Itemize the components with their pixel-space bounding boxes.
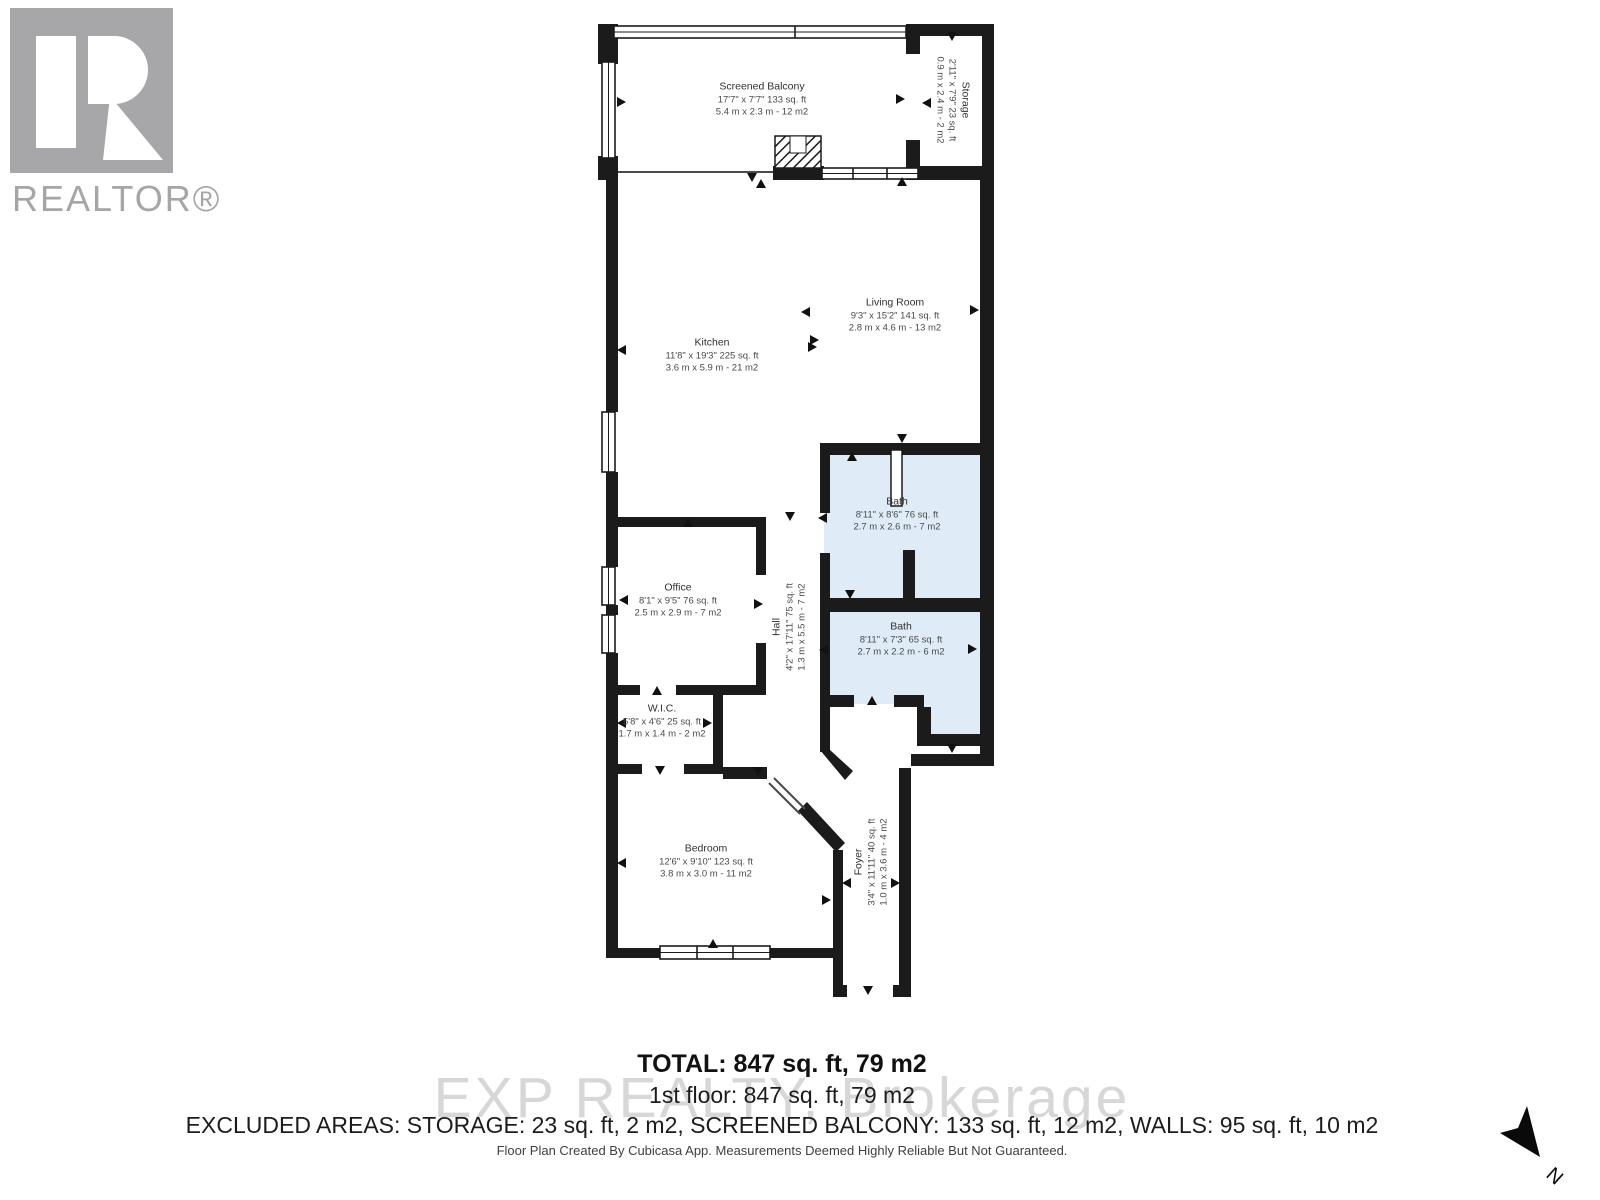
north-label: N [1542,1163,1567,1189]
disclaimer-text: Floor Plan Created By Cubicasa App. Meas… [0,1143,1564,1158]
shower-partition [891,450,902,506]
realtor-wordmark: REALTOR® [12,178,221,220]
first-floor-line: 1st floor: 847 sq. ft, 79 m2 [0,1082,1564,1109]
excluded-areas-line: EXCLUDED AREAS: STORAGE: 23 sq. ft, 2 m2… [0,1112,1564,1139]
floor-plan-drawing: N [0,0,1600,1200]
total-area-line: TOTAL: 847 sq. ft, 79 m2 [0,1050,1564,1079]
opening-lines [618,172,805,814]
realtor-logo [10,8,210,183]
floor-plan-page: REALTOR® EXP REALTY, Brokerage [0,0,1600,1200]
area-summary: TOTAL: 847 sq. ft, 79 m2 1st floor: 847 … [0,1050,1564,1139]
fireplace [775,136,821,168]
diagonal-walls [798,750,853,852]
